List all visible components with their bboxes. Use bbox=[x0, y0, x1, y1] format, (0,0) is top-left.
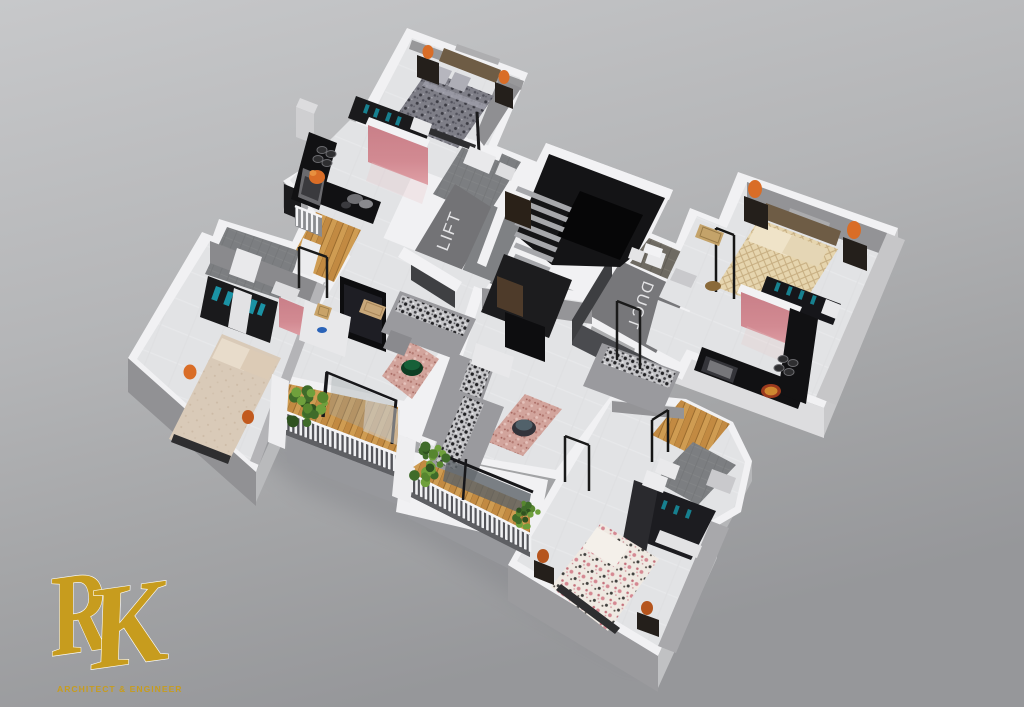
svg-text:ARCHITECT & ENGINEER: ARCHITECT & ENGINEER bbox=[57, 684, 183, 694]
